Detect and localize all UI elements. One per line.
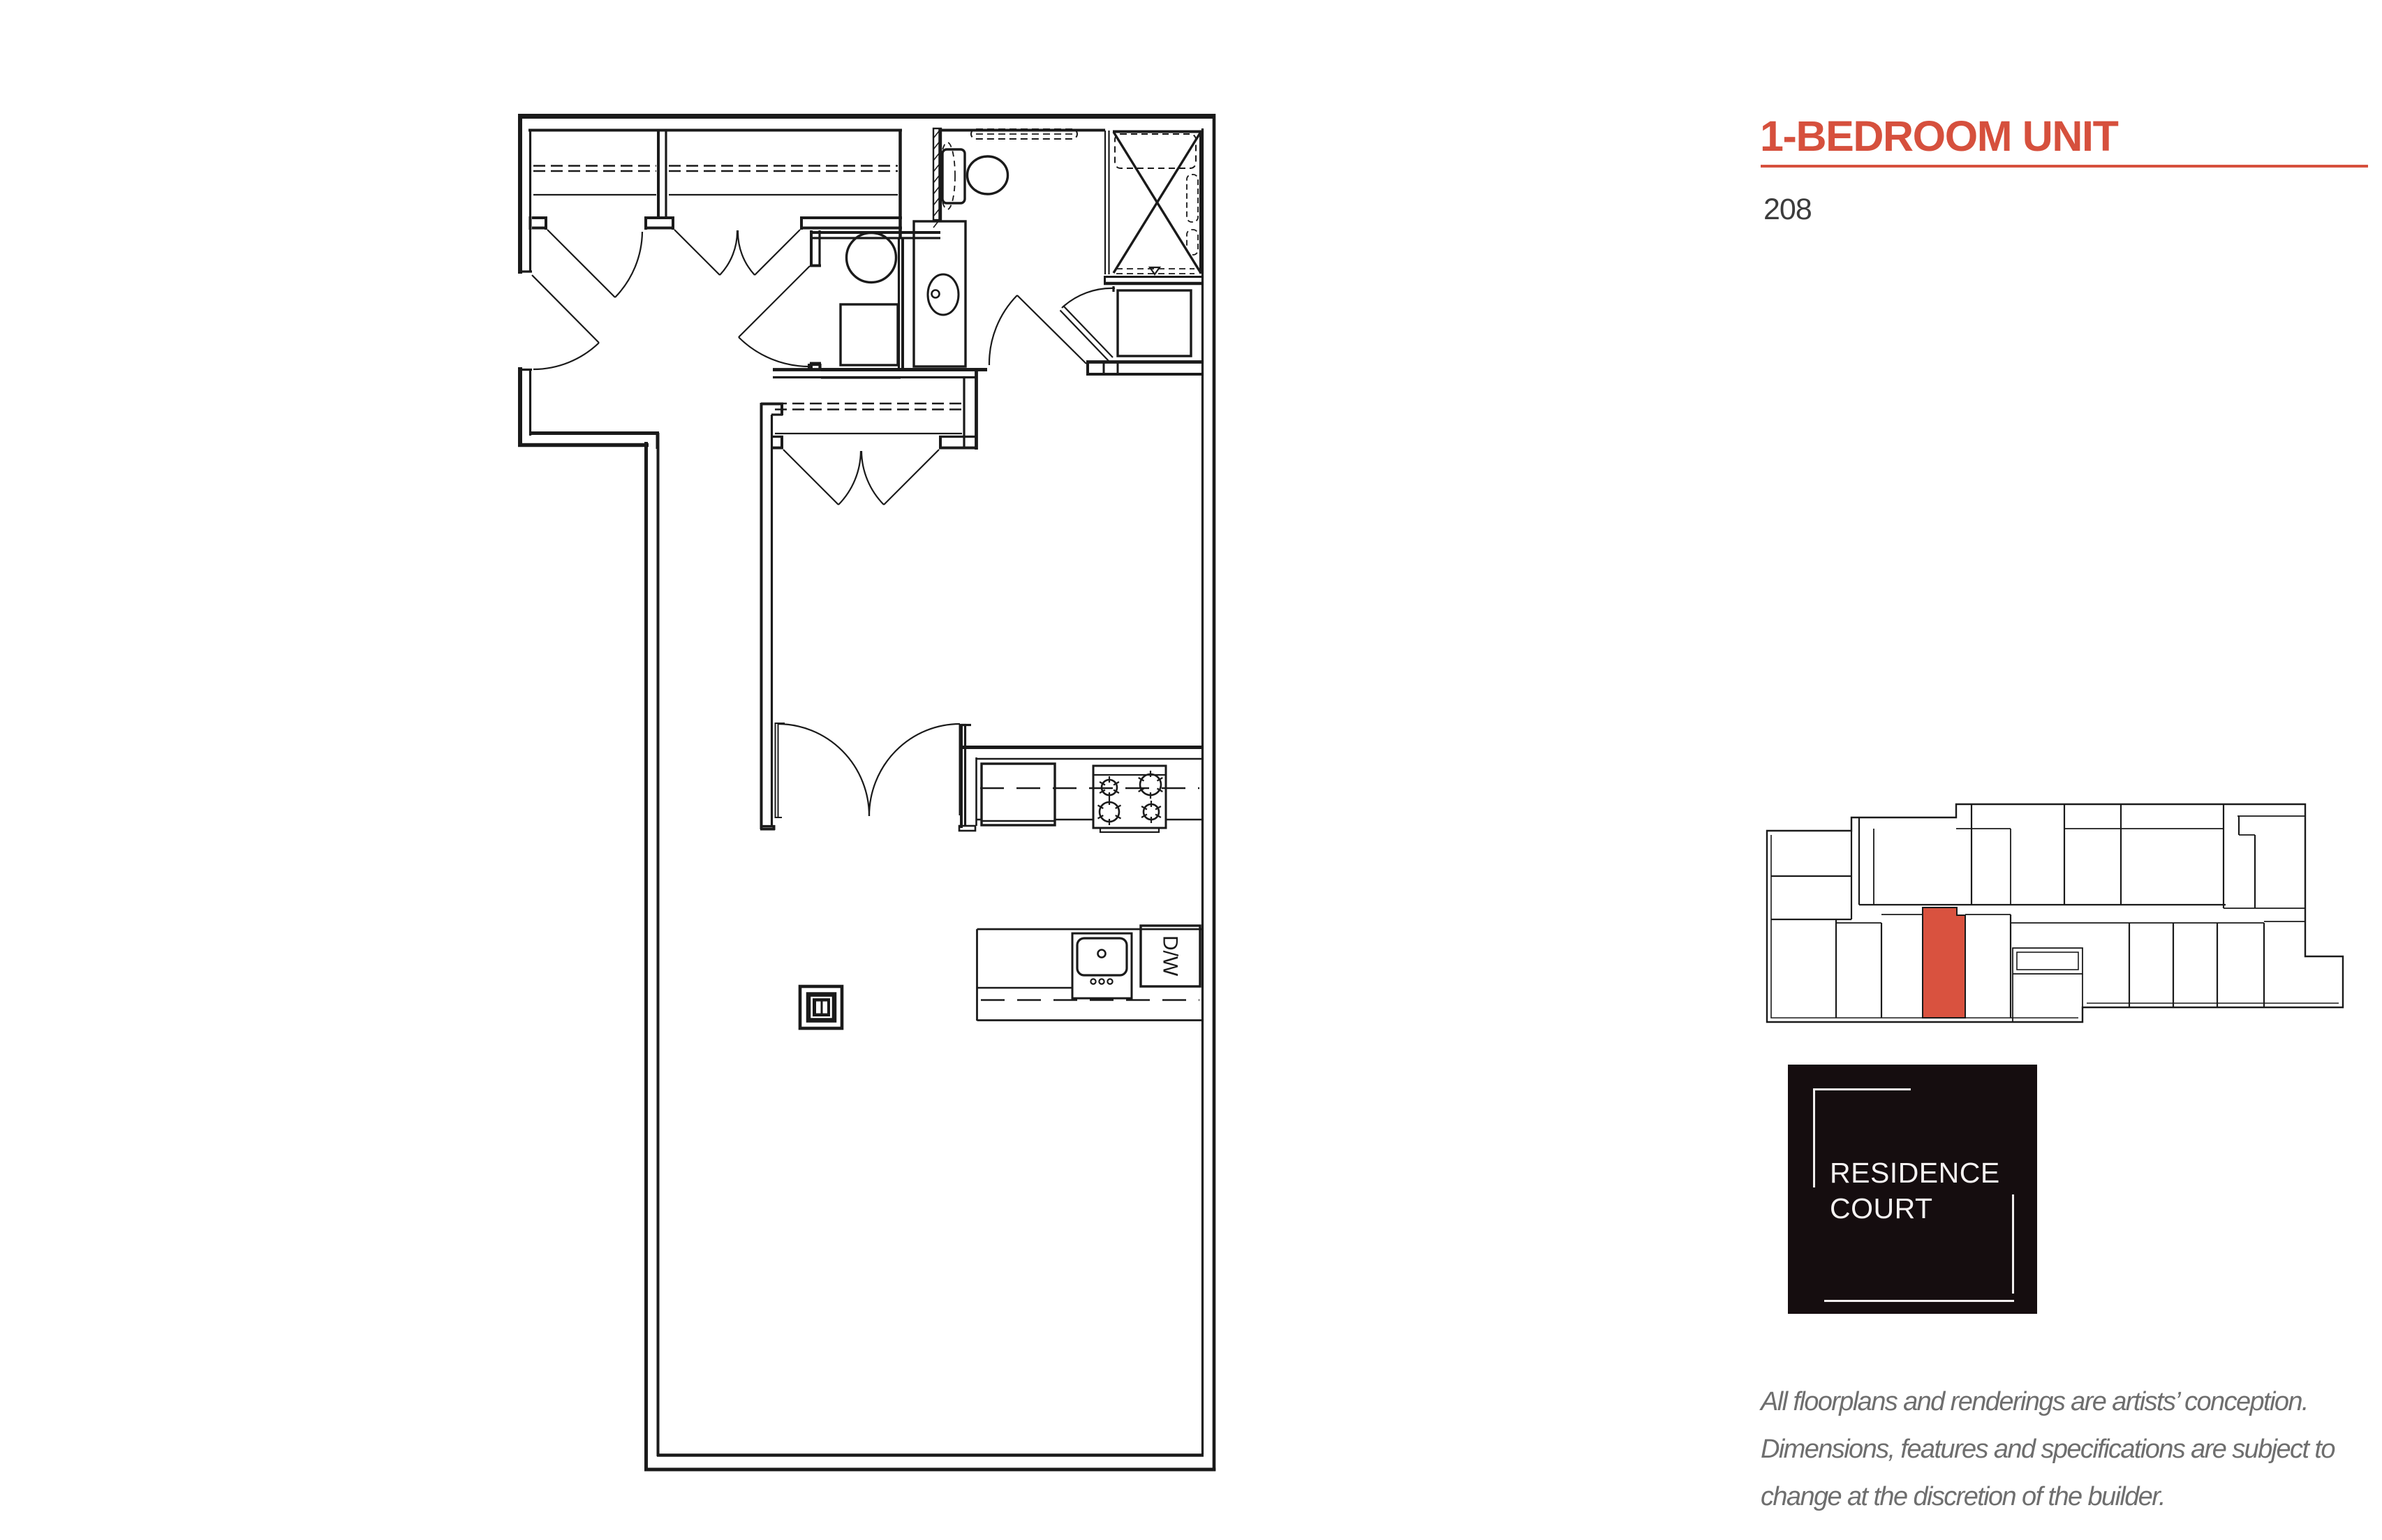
svg-text:D/W: D/W [1159, 935, 1182, 977]
